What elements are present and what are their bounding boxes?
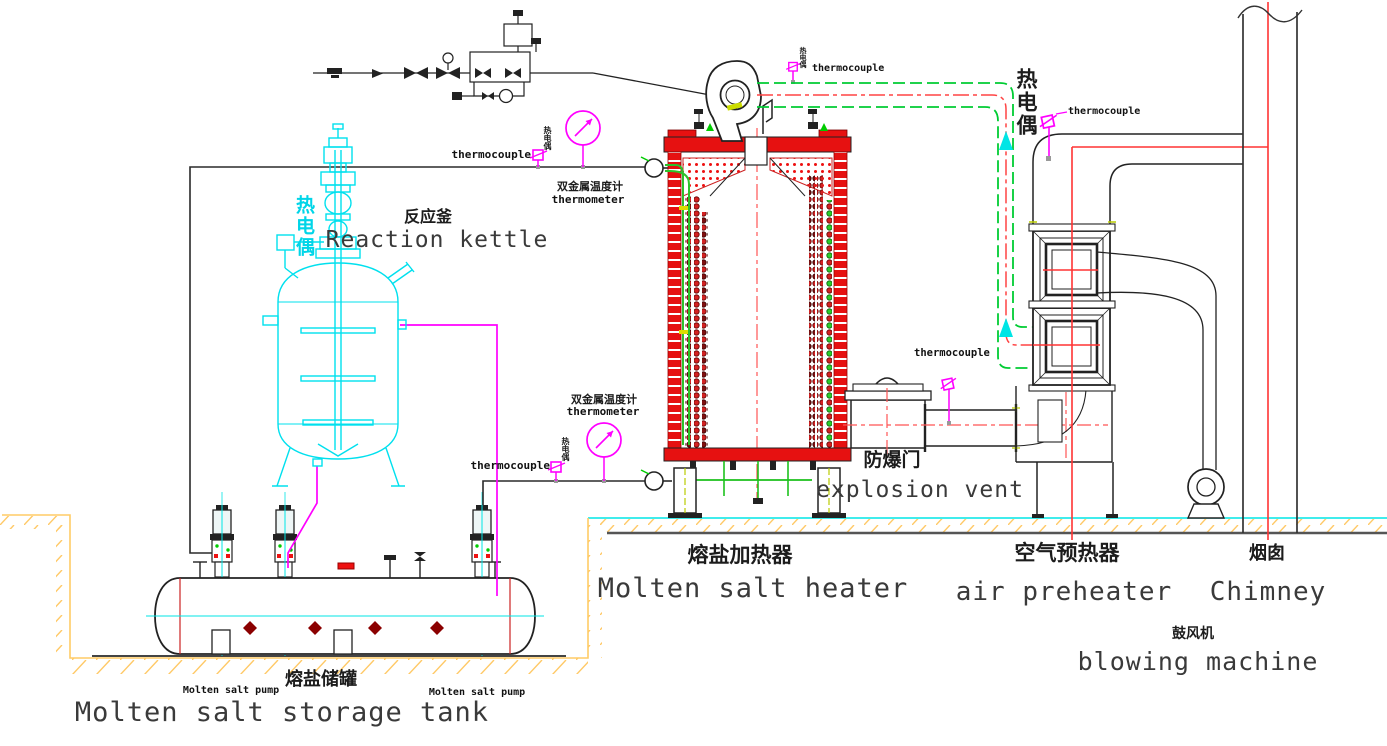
duct-thermocouple-icon bbox=[939, 377, 958, 425]
heater-label-en: Molten salt heater bbox=[598, 575, 909, 602]
reaction-kettle-label-en: Reaction kettle bbox=[326, 229, 549, 252]
flow-arrow-up bbox=[999, 131, 1013, 150]
chimney-label-zh: 烟囱 bbox=[1249, 545, 1285, 563]
upper-thermometer-label-en: thermometer bbox=[552, 194, 625, 205]
lower-thermometer-label-en: thermometer bbox=[567, 406, 640, 417]
valve-icon bbox=[404, 67, 428, 79]
kettle-thermocouple-label-zh: 热电偶 bbox=[294, 195, 313, 258]
storage-tank-label-zh: 熔盐储罐 bbox=[285, 671, 357, 689]
explosion-vent-label-zh: 防爆门 bbox=[863, 451, 920, 470]
upper-thermocouple-label-zh: 热电偶 bbox=[543, 126, 551, 150]
piping-diagram: 反应釜 Reaction kettle 双金属温度计 thermometer t… bbox=[0, 0, 1387, 746]
upper-thermometer-icon bbox=[566, 111, 600, 167]
lower-thermocouple-label-zh: 热电偶 bbox=[561, 437, 569, 461]
blowing-machine-label-en: blowing machine bbox=[1078, 649, 1319, 674]
pipe-flange-lower bbox=[645, 472, 663, 490]
heater-thermocouple-label-zh: 热电偶 bbox=[799, 47, 806, 68]
fuel-gas-train bbox=[313, 10, 710, 103]
flow-arrow bbox=[372, 69, 383, 78]
duct-thermocouple-label: thermocouple bbox=[914, 348, 990, 359]
chimney bbox=[1238, 6, 1302, 533]
reaction-kettle bbox=[263, 124, 414, 486]
lower-thermocouple-icon bbox=[548, 462, 565, 481]
blowing-machine bbox=[1188, 469, 1224, 518]
preheater-thermocouple-label: thermocouple bbox=[1068, 107, 1140, 117]
preheater-label-zh: 空气预热器 bbox=[1015, 543, 1120, 564]
reaction-kettle-label-zh: 反应釜 bbox=[404, 209, 452, 225]
lower-thermocouple-label: thermocouple bbox=[471, 460, 550, 471]
preheater-thermocouple-icon bbox=[1038, 112, 1067, 161]
explosion-vent bbox=[845, 378, 931, 448]
molten-salt-heater bbox=[664, 61, 851, 518]
lower-thermometer-icon bbox=[587, 423, 621, 481]
explosion-vent-label-en: explosion vent bbox=[816, 479, 1024, 502]
lower-thermometer-label-zh: 双金属温度计 bbox=[571, 394, 637, 405]
burner-blower-icon bbox=[706, 61, 761, 141]
molten-salt-pump-1 bbox=[210, 505, 234, 577]
pump-left-label: Molten salt pump bbox=[183, 686, 279, 696]
upper-thermocouple-label: thermocouple bbox=[452, 149, 531, 160]
molten-salt-storage-tank bbox=[146, 492, 544, 656]
molten-salt-pump-2 bbox=[273, 505, 297, 577]
chimney-label-en: Chimney bbox=[1210, 579, 1327, 605]
blowing-machine-label-zh: 鼓风机 bbox=[1172, 627, 1214, 641]
upper-thermocouple-icon bbox=[530, 150, 547, 167]
hot-air-lines bbox=[757, 83, 1033, 368]
storage-tank-label-en: Molten salt storage tank bbox=[75, 699, 489, 726]
flow-arrow-up bbox=[999, 318, 1013, 337]
heater-label-zh: 熔盐加热器 bbox=[688, 545, 793, 566]
pipe-flange-upper bbox=[645, 159, 663, 177]
air-preheater bbox=[1016, 134, 1243, 518]
heater-thermocouple-label: thermocouple bbox=[812, 64, 884, 74]
molten-salt-pump-3 bbox=[470, 505, 494, 577]
upper-thermometer-label-zh: 双金属温度计 bbox=[557, 181, 623, 192]
preheater-label-en: air preheater bbox=[956, 579, 1173, 605]
pump-icon bbox=[500, 90, 513, 103]
preheater-thermocouple-label-zh: 热电偶 bbox=[1015, 68, 1036, 137]
